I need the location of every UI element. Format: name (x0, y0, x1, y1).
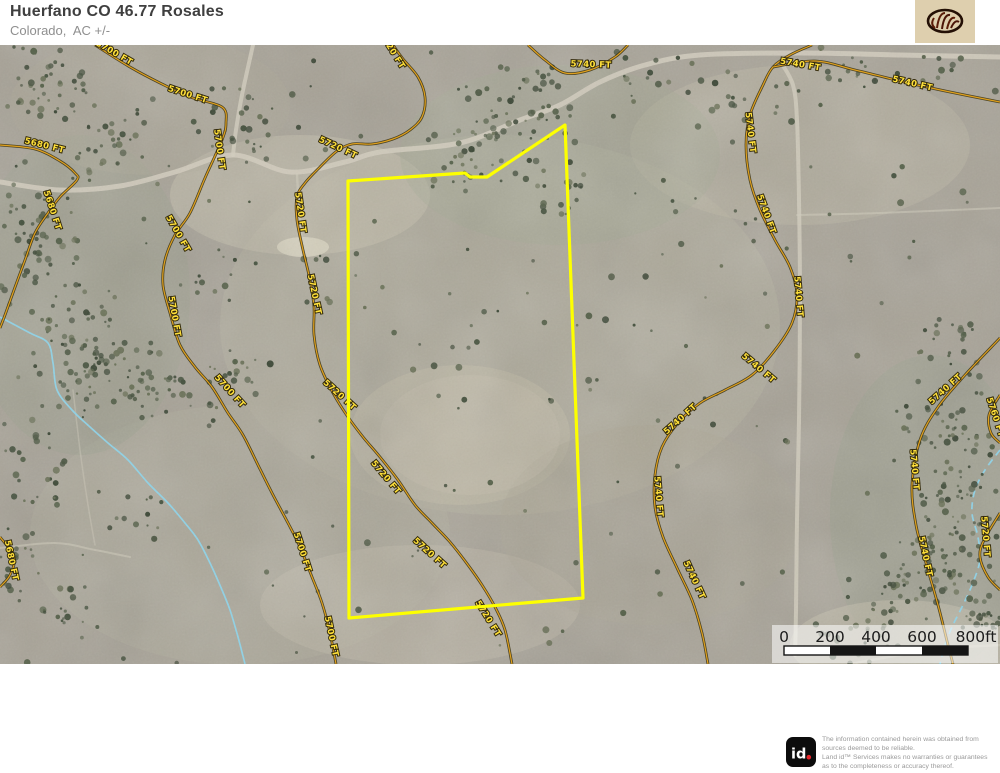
land-id-logo-dot (807, 755, 812, 760)
footer: id The information contained herein was … (0, 710, 1000, 773)
header: Huerfano CO 46.77 Rosales Colorado, AC +… (0, 0, 1000, 45)
brand-logo (915, 0, 975, 43)
disclaimer-line: as to the completeness or accuracy there… (822, 763, 994, 772)
scale-bar-label: 400 (861, 628, 891, 646)
map-area: 5680 FT5680 FT5680 FT5700 FT5700 FT5700 … (0, 45, 1000, 664)
page-title: Huerfano CO 46.77 Rosales (10, 3, 224, 21)
scale-bar-label: 0 (779, 628, 789, 646)
legend: HouseBoundaryForest ServicState LandFish… (0, 664, 1000, 710)
scale-bar: 0200400600800ft (772, 625, 998, 663)
land-report-page: Huerfano CO 46.77 Rosales Colorado, AC +… (0, 0, 1000, 773)
disclaimer-text: The information contained herein was obt… (822, 736, 994, 772)
land-id-logo: id (786, 737, 816, 767)
scale-bar-label: 200 (815, 628, 845, 646)
disclaimer-line: sources deemed to be reliable. (822, 745, 994, 754)
disclaimer-line: Land id™ Services makes no warranties or… (822, 754, 994, 763)
map-canvas[interactable]: 5680 FT5680 FT5680 FT5700 FT5700 FT5700 … (0, 45, 1000, 664)
disclaimer-line: The information contained herein was obt… (822, 736, 994, 745)
scale-bar-label: 600 (907, 628, 937, 646)
page-subtitle: Colorado, AC +/- (10, 23, 110, 38)
scale-bar-label: 800ft (956, 628, 997, 646)
land-id-logo-text: id (791, 747, 806, 763)
terrain-grain (0, 45, 1000, 664)
contour-elevation-label: 5740 FT (570, 59, 611, 70)
scale-bar-segment (922, 646, 968, 655)
scale-bar-segment (830, 646, 876, 655)
